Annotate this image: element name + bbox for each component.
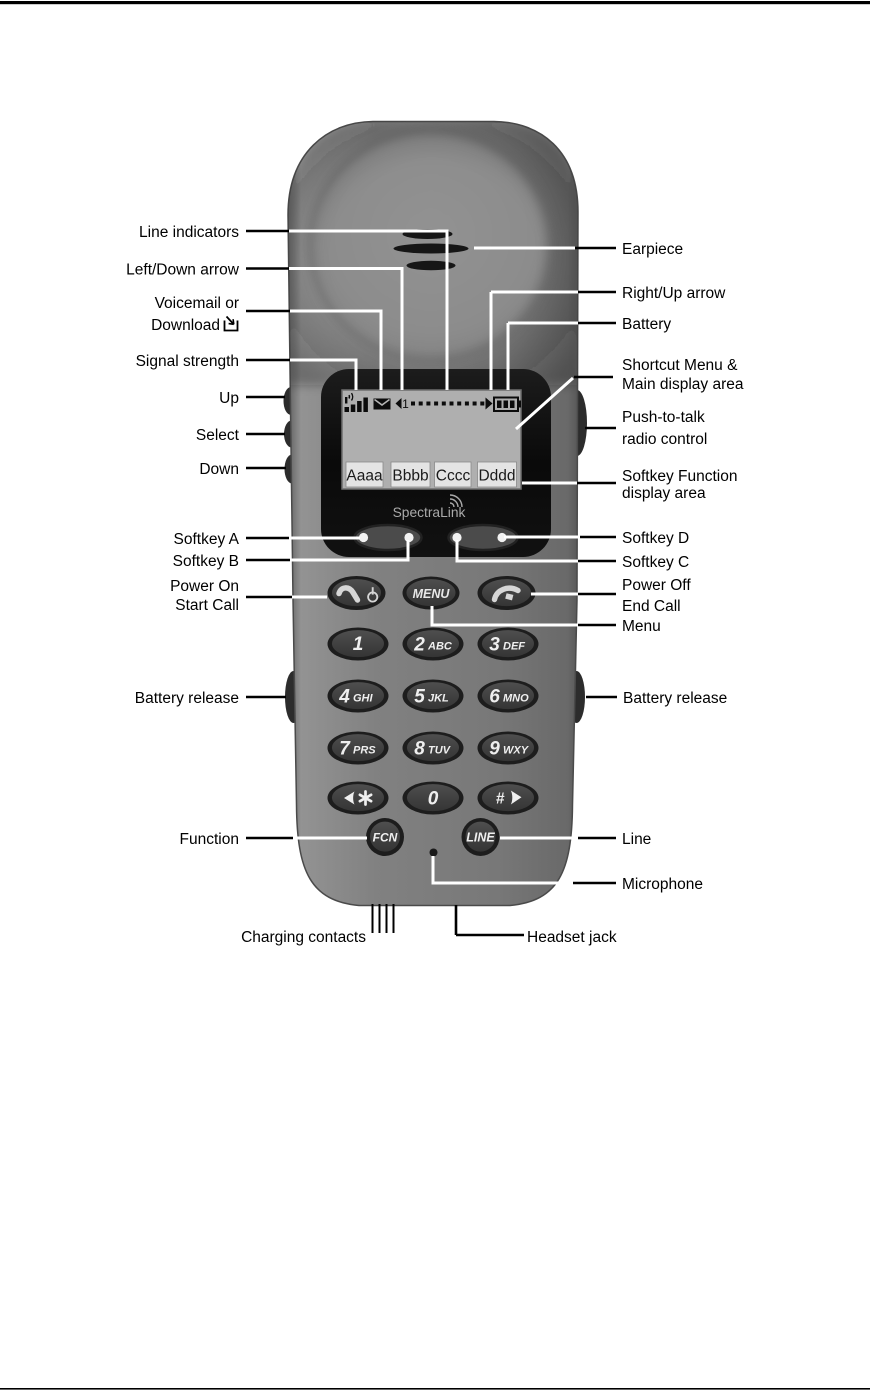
svg-text:Softkey C: Softkey C	[622, 554, 689, 571]
svg-text:FCN: FCN	[373, 831, 398, 845]
svg-text:Up: Up	[219, 390, 239, 407]
svg-text:0: 0	[428, 789, 439, 810]
svg-text:Charging contacts: Charging contacts	[241, 929, 366, 946]
svg-text:Power Off: Power Off	[622, 577, 691, 594]
svg-text:4: 4	[338, 687, 350, 708]
svg-text:display area: display area	[622, 485, 706, 502]
svg-text:Shortcut Menu &: Shortcut Menu &	[622, 357, 738, 374]
svg-text:MENU: MENU	[413, 587, 451, 601]
svg-text:Softkey Function: Softkey Function	[622, 468, 737, 485]
svg-text:JKL: JKL	[428, 693, 449, 705]
svg-text:5: 5	[414, 687, 425, 708]
svg-text:Function: Function	[180, 831, 239, 848]
svg-text:1: 1	[402, 397, 409, 411]
svg-text:Battery release: Battery release	[623, 690, 727, 707]
svg-text:9: 9	[489, 739, 500, 760]
svg-text:DEF: DEF	[503, 641, 525, 653]
svg-text:Menu: Menu	[622, 618, 661, 635]
svg-text:Download: Download	[151, 317, 220, 334]
svg-text:1: 1	[353, 634, 364, 655]
svg-text:GHI: GHI	[353, 693, 374, 705]
svg-text:#: #	[496, 791, 505, 808]
svg-text:Headset jack: Headset jack	[527, 929, 617, 946]
svg-text:Line: Line	[622, 831, 651, 848]
svg-text:Start Call: Start Call	[175, 597, 239, 614]
svg-text:ABC: ABC	[427, 641, 453, 653]
svg-text:6: 6	[489, 687, 500, 708]
svg-text:Microphone: Microphone	[622, 876, 703, 893]
svg-text:Power On: Power On	[170, 578, 239, 595]
svg-text:2: 2	[413, 635, 425, 656]
svg-text:Main display area: Main display area	[622, 376, 744, 393]
svg-text:Softkey B: Softkey B	[173, 553, 239, 570]
svg-text:PRS: PRS	[353, 745, 376, 757]
svg-text:radio control: radio control	[622, 431, 707, 448]
svg-text:Left/Down arrow: Left/Down arrow	[126, 262, 240, 279]
svg-text:TUV: TUV	[428, 745, 452, 757]
svg-text:Bbbb: Bbbb	[392, 468, 428, 485]
svg-text:Select: Select	[196, 427, 240, 444]
svg-text:Push-to-talk: Push-to-talk	[622, 409, 705, 426]
svg-text:Voicemail or: Voicemail or	[155, 295, 239, 312]
svg-text:Signal strength: Signal strength	[136, 353, 239, 370]
svg-text:End Call: End Call	[622, 598, 681, 615]
svg-text:Softkey A: Softkey A	[174, 531, 240, 548]
svg-text:Battery release: Battery release	[135, 690, 239, 707]
svg-text:3: 3	[489, 635, 500, 656]
svg-text:Down: Down	[199, 461, 239, 478]
svg-text:LINE: LINE	[466, 831, 495, 845]
svg-text:SpectraLink: SpectraLink	[393, 505, 466, 520]
svg-text:Cccc: Cccc	[436, 468, 471, 485]
svg-text:Softkey D: Softkey D	[622, 530, 689, 547]
svg-text:Right/Up arrow: Right/Up arrow	[622, 285, 726, 302]
svg-text:MNO: MNO	[503, 693, 529, 705]
svg-text:WXY: WXY	[503, 745, 530, 757]
svg-text:7: 7	[339, 739, 351, 760]
svg-text:Aaaa: Aaaa	[346, 468, 383, 485]
svg-text:Line indicators: Line indicators	[139, 224, 239, 241]
svg-text:Earpiece: Earpiece	[622, 241, 683, 258]
svg-text:8: 8	[414, 739, 425, 760]
svg-text:Battery: Battery	[622, 316, 671, 333]
svg-text:Dddd: Dddd	[478, 468, 515, 485]
